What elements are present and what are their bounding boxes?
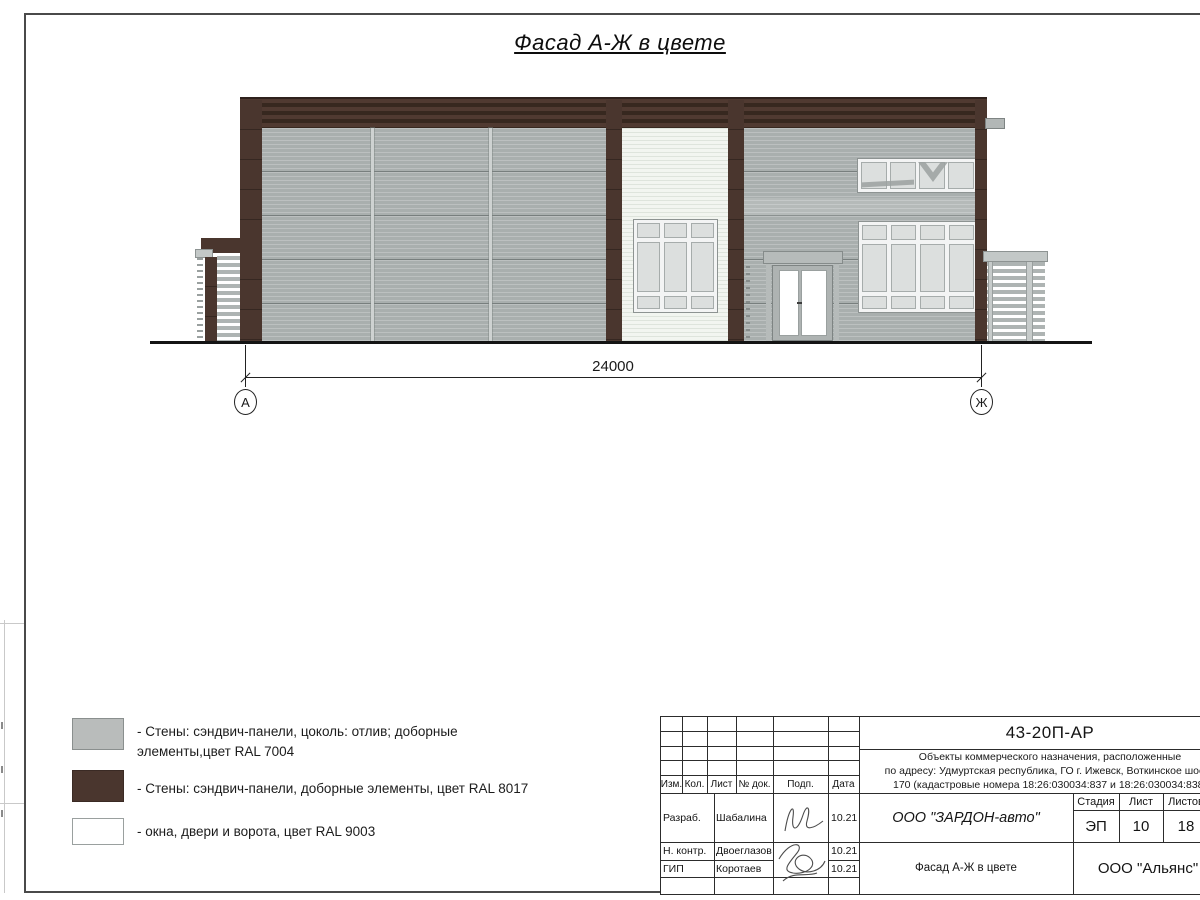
fence-left-post xyxy=(205,257,217,341)
fence-right-louvers xyxy=(987,262,1045,341)
rev-col-izm: Изм. xyxy=(661,775,682,793)
attr-strip-line xyxy=(4,620,5,893)
attr-strip-line xyxy=(0,623,24,624)
window-pane xyxy=(664,223,687,238)
window-band-upper xyxy=(857,158,978,193)
sheets-value: 18 xyxy=(1163,810,1200,842)
project-description-line: 170 (кадастровые номера 18:26:030034:837… xyxy=(859,778,1200,792)
door-trim xyxy=(834,264,839,341)
legend-swatch-white xyxy=(72,818,124,845)
window-pane xyxy=(637,223,660,238)
role-name: Шабалина xyxy=(716,793,773,842)
door-handle xyxy=(797,302,802,304)
axis-bubble-zh: Ж xyxy=(970,389,993,415)
panel-joint xyxy=(489,128,492,341)
window-pane xyxy=(637,296,660,309)
sheets-header: Листов xyxy=(1163,793,1200,810)
role-date: 10.21 xyxy=(831,860,859,877)
axis-bubble-a: А xyxy=(234,389,257,415)
role-label: ГИП xyxy=(663,860,714,877)
window-pane xyxy=(691,296,714,309)
window-pane xyxy=(691,223,714,238)
sheet-header: Лист xyxy=(1119,793,1163,810)
window-pane xyxy=(920,225,945,240)
role-date: 10.21 xyxy=(831,842,859,860)
role-name: Коротаев xyxy=(716,860,773,877)
role-name: Двоеглазов xyxy=(716,842,773,860)
window-pane xyxy=(637,242,660,292)
sheet-value: 10 xyxy=(1119,810,1163,842)
fence-right-post xyxy=(1026,262,1033,341)
window-pane xyxy=(664,242,687,292)
door-leaf-right xyxy=(801,270,827,336)
window-pane xyxy=(920,296,945,309)
company-name: ООО "ЗАРДОН-авто" xyxy=(859,793,1073,842)
signature xyxy=(775,797,827,841)
legend-label: - Стены: сэндвич-панели, цоколь: отлив; … xyxy=(137,722,467,763)
window-pane xyxy=(891,225,916,240)
project-description-line: по адресу: Удмуртская республика, ГО г. … xyxy=(859,764,1200,778)
wall-band xyxy=(744,198,975,216)
stage-value: ЭП xyxy=(1073,810,1119,842)
window-right xyxy=(858,221,978,313)
legend-swatch-brown xyxy=(72,770,124,802)
attr-strip-mark xyxy=(1,766,3,773)
door-frame xyxy=(772,265,833,341)
door-trim xyxy=(766,264,771,341)
dimension-line xyxy=(245,377,982,378)
door-leaf-left xyxy=(779,270,799,336)
org-name: ООО "Альянс" xyxy=(1073,842,1200,894)
fence-right-post xyxy=(988,262,993,341)
role-date: 10.21 xyxy=(831,793,859,842)
door-canopy xyxy=(763,251,843,264)
pilaster-mid-left xyxy=(606,100,622,341)
signature xyxy=(773,837,829,891)
pilaster-right xyxy=(975,100,987,341)
window-pane xyxy=(949,296,974,309)
rev-col-list: Лист xyxy=(707,775,736,793)
project-description-line: Объекты коммерческого назначения, распол… xyxy=(859,750,1200,764)
window-pane xyxy=(691,242,714,292)
legend-swatch-gray xyxy=(72,718,124,750)
window-pane xyxy=(862,225,887,240)
dim-extension-line xyxy=(245,345,246,387)
window-pane xyxy=(891,296,916,309)
doc-number: 43-20П-АР xyxy=(859,717,1200,749)
window-pane xyxy=(862,296,887,309)
role-label: Н. контр. xyxy=(663,842,714,860)
window-pane xyxy=(920,244,945,292)
panel-joint xyxy=(371,128,374,341)
window-pane xyxy=(664,296,687,309)
facade-wall-gray-left xyxy=(262,128,606,341)
project-description: Объекты коммерческого назначения, распол… xyxy=(859,750,1200,793)
window-middle xyxy=(633,219,718,313)
rev-col-doc: № док. xyxy=(736,775,773,793)
legend-label: - окна, двери и ворота, цвет RAL 9003 xyxy=(137,822,697,842)
rev-col-podp: Подп. xyxy=(773,775,828,793)
window-pane xyxy=(949,244,974,292)
window-pane xyxy=(862,244,887,292)
title-block: Изм. Кол. Лист № док. Подп. Дата Разраб.… xyxy=(660,716,1200,895)
fence-right-cap xyxy=(983,251,1048,262)
drawing-sheet: Фасад А-Ж в цвете xyxy=(0,0,1200,900)
rev-col-data: Дата xyxy=(828,775,859,793)
dimension-value: 24000 xyxy=(543,358,683,375)
role-label: Разраб. xyxy=(663,793,714,842)
fence-left-edge xyxy=(197,258,203,341)
attr-strip-mark xyxy=(1,722,3,729)
pilaster-left xyxy=(240,100,262,341)
attr-strip-mark xyxy=(1,810,3,817)
dim-extension-line xyxy=(981,345,982,387)
legend-label: - Стены: сэндвич-панели, доборные элемен… xyxy=(137,779,697,799)
attr-strip-line xyxy=(0,803,24,804)
roof-bracket xyxy=(985,118,1005,129)
drawing-title: Фасад А-Ж в цвете xyxy=(859,842,1073,894)
pilaster-mid-right xyxy=(728,100,744,341)
fence-left-louvers xyxy=(217,256,240,341)
stage-header: Стадия xyxy=(1073,793,1119,810)
fastener-marks xyxy=(746,266,750,340)
sheet-title: Фасад А-Ж в цвете xyxy=(360,30,880,56)
ground-line xyxy=(150,341,1092,344)
window-pane xyxy=(948,162,974,189)
window-pane xyxy=(949,225,974,240)
window-pane xyxy=(891,244,916,292)
rev-col-kol: Кол. xyxy=(682,775,707,793)
